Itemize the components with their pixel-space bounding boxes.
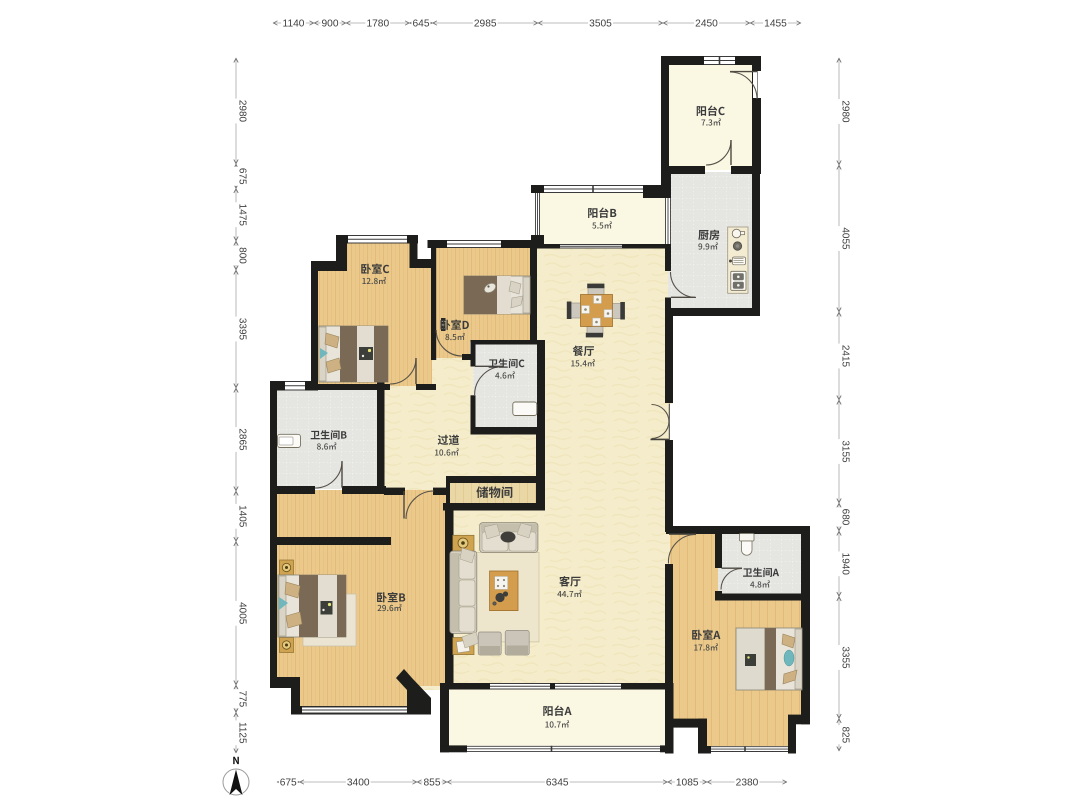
- svg-text:1475: 1475: [236, 204, 247, 227]
- svg-text:3355: 3355: [839, 646, 850, 669]
- svg-text:3400: 3400: [347, 777, 370, 788]
- svg-text:1405: 1405: [236, 505, 247, 528]
- svg-text:6345: 6345: [546, 777, 569, 788]
- svg-text:3155: 3155: [839, 440, 850, 463]
- svg-text:2980: 2980: [236, 100, 247, 123]
- svg-text:4005: 4005: [236, 602, 247, 625]
- svg-text:2380: 2380: [736, 777, 759, 788]
- svg-text:900: 900: [322, 18, 339, 29]
- svg-text:2450: 2450: [695, 18, 718, 29]
- svg-text:3395: 3395: [236, 318, 247, 341]
- svg-text:2985: 2985: [474, 18, 497, 29]
- svg-text:1940: 1940: [839, 553, 850, 576]
- svg-text:675: 675: [236, 168, 247, 185]
- svg-text:855: 855: [424, 777, 441, 788]
- svg-text:680: 680: [839, 509, 850, 526]
- svg-text:3505: 3505: [589, 18, 612, 29]
- svg-text:2980: 2980: [839, 100, 850, 123]
- svg-text:800: 800: [236, 247, 247, 264]
- svg-text:675: 675: [280, 777, 297, 788]
- svg-text:4055: 4055: [839, 227, 850, 250]
- svg-text:1085: 1085: [676, 777, 699, 788]
- svg-text:775: 775: [236, 690, 247, 707]
- svg-text:1455: 1455: [764, 18, 787, 29]
- svg-text:1780: 1780: [366, 18, 389, 29]
- svg-text:2865: 2865: [236, 428, 247, 451]
- svg-text:2415: 2415: [839, 345, 850, 368]
- svg-text:825: 825: [839, 726, 850, 743]
- svg-text:1125: 1125: [236, 722, 247, 744]
- svg-text:645: 645: [413, 18, 430, 29]
- svg-text:1140: 1140: [283, 18, 305, 29]
